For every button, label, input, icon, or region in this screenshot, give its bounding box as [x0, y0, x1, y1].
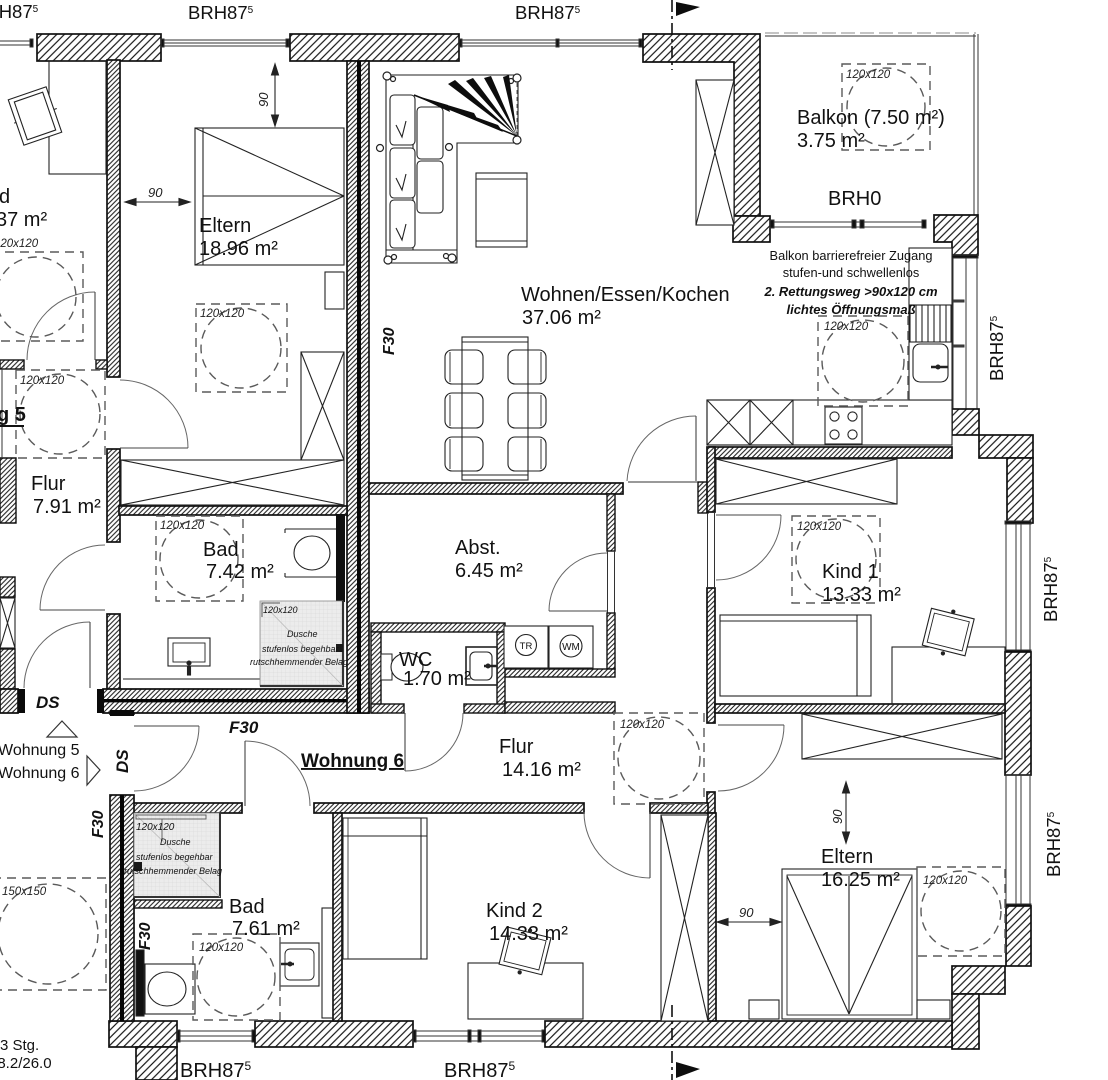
- svg-text:37.06 m²: 37.06 m²: [522, 307, 601, 329]
- svg-text:90: 90: [830, 809, 845, 824]
- svg-text:7.91 m²: 7.91 m²: [33, 496, 101, 518]
- svg-text:Balkon (7.50 m²): Balkon (7.50 m²): [797, 107, 945, 129]
- svg-text:Flur: Flur: [499, 736, 534, 758]
- svg-text:Abst.: Abst.: [455, 537, 501, 559]
- svg-text:Eltern: Eltern: [821, 846, 873, 868]
- svg-text:BRH875: BRH875: [444, 1059, 515, 1080]
- svg-text:Kind 1: Kind 1: [822, 561, 879, 583]
- svg-text:120x120: 120x120: [797, 521, 842, 533]
- svg-text:stufenlos begehbar: stufenlos begehbar: [262, 644, 340, 654]
- svg-text:BRH875: BRH875: [1043, 811, 1064, 877]
- svg-text:7.42 m²: 7.42 m²: [206, 561, 274, 583]
- svg-text:F30: F30: [381, 327, 398, 355]
- svg-text:18.2/26.0: 18.2/26.0: [0, 1055, 52, 1072]
- svg-text:Wohnung 5: Wohnung 5: [0, 742, 80, 759]
- svg-text:Wohnung 6: Wohnung 6: [301, 751, 404, 772]
- svg-text:120x120: 120x120: [200, 308, 245, 320]
- svg-text:120x120: 120x120: [136, 822, 175, 833]
- svg-text:BRH875: BRH875: [986, 315, 1007, 381]
- svg-text:90: 90: [256, 92, 271, 107]
- svg-text:F30: F30: [229, 718, 259, 737]
- svg-text:120x120: 120x120: [923, 875, 968, 887]
- svg-text:Dusche: Dusche: [287, 629, 318, 639]
- svg-text:Kind 2: Kind 2: [486, 900, 543, 922]
- svg-text:Dusche: Dusche: [160, 837, 191, 847]
- svg-text:2. Rettungsweg >90x120 cm: 2. Rettungsweg >90x120 cm: [763, 284, 937, 299]
- svg-text:120x120: 120x120: [0, 238, 39, 250]
- svg-text:120x120: 120x120: [846, 69, 891, 81]
- svg-text:14.16 m²: 14.16 m²: [502, 759, 581, 781]
- svg-text:lichtes Öffnungsmaß: lichtes Öffnungsmaß: [786, 302, 915, 317]
- svg-text:120x120: 120x120: [160, 520, 205, 532]
- svg-text:BRH875: BRH875: [515, 2, 581, 23]
- svg-text:120x120: 120x120: [263, 605, 298, 615]
- svg-text:F30: F30: [90, 810, 107, 838]
- svg-text:rutschhemmender Belag: rutschhemmender Belag: [124, 866, 222, 876]
- svg-text:150x150: 150x150: [2, 886, 47, 898]
- svg-text:14.33 m²: 14.33 m²: [489, 923, 568, 945]
- svg-text:Wohnung 6: Wohnung 6: [0, 765, 80, 782]
- svg-text:Eltern: Eltern: [199, 215, 251, 237]
- svg-text:TR: TR: [520, 641, 533, 652]
- svg-text:3 Stg.: 3 Stg.: [0, 1037, 39, 1054]
- svg-text:g 5: g 5: [0, 404, 26, 426]
- svg-text:90: 90: [148, 185, 163, 200]
- svg-text:BRH875: BRH875: [188, 2, 254, 23]
- svg-text:37 m²: 37 m²: [0, 209, 47, 231]
- svg-text:d: d: [0, 186, 10, 208]
- svg-text:120x120: 120x120: [824, 321, 869, 333]
- svg-text:16.25 m²: 16.25 m²: [821, 869, 900, 891]
- svg-text:3.75 m²: 3.75 m²: [797, 130, 865, 152]
- svg-text:18.96 m²: 18.96 m²: [199, 238, 278, 260]
- svg-text:13.33 m²: 13.33 m²: [822, 584, 901, 606]
- svg-text:stufen-und schwellenlos: stufen-und schwellenlos: [783, 265, 920, 280]
- svg-text:F30: F30: [137, 922, 154, 950]
- svg-text:120x120: 120x120: [199, 942, 244, 954]
- svg-text:stufenlos begehbar: stufenlos begehbar: [136, 852, 214, 862]
- svg-text:BRH0: BRH0: [828, 188, 881, 210]
- svg-text:BRH875: BRH875: [1040, 556, 1061, 622]
- svg-text:Bad: Bad: [203, 539, 239, 561]
- svg-text:Flur: Flur: [31, 473, 66, 495]
- svg-text:7.61 m²: 7.61 m²: [232, 918, 300, 940]
- svg-text:Balkon barrierefreier Zugang: Balkon barrierefreier Zugang: [770, 248, 933, 263]
- svg-text:120x120: 120x120: [20, 375, 65, 387]
- svg-text:1.70 m²: 1.70 m²: [403, 668, 471, 690]
- svg-text:90: 90: [739, 905, 754, 920]
- svg-text:120x120: 120x120: [620, 719, 665, 731]
- svg-text:WM: WM: [562, 642, 580, 653]
- svg-text:Bad: Bad: [229, 896, 265, 918]
- svg-text:BRH875: BRH875: [180, 1059, 251, 1080]
- svg-text:DS: DS: [36, 693, 60, 712]
- svg-text:rutschhemmender Belag: rutschhemmender Belag: [250, 657, 348, 667]
- svg-text:DS: DS: [113, 749, 132, 773]
- svg-text:6.45 m²: 6.45 m²: [455, 560, 523, 582]
- svg-text:Wohnen/Essen/Kochen: Wohnen/Essen/Kochen: [521, 284, 730, 306]
